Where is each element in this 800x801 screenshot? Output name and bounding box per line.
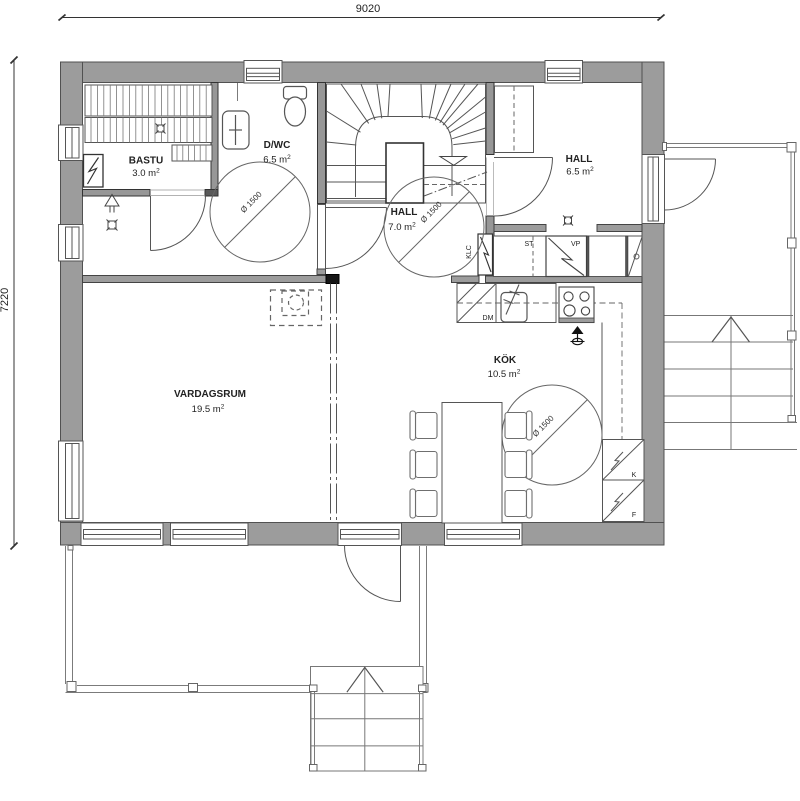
svg-text:K: K xyxy=(632,472,637,479)
svg-text:9020: 9020 xyxy=(356,3,380,15)
svg-text:HALL: HALL xyxy=(566,154,593,165)
svg-text:6.5 m2: 6.5 m2 xyxy=(263,154,291,166)
svg-text:KÖK: KÖK xyxy=(494,353,517,366)
svg-text:BASTU: BASTU xyxy=(129,156,163,167)
svg-text:VP: VP xyxy=(571,241,581,248)
svg-text:ST: ST xyxy=(525,241,535,248)
svg-text:19.5 m2: 19.5 m2 xyxy=(192,404,225,416)
svg-text:7.0 m2: 7.0 m2 xyxy=(388,222,416,234)
svg-text:3.0 m2: 3.0 m2 xyxy=(132,168,160,180)
svg-text:VARDAGSRUM: VARDAGSRUM xyxy=(174,389,246,400)
svg-text:7220: 7220 xyxy=(0,288,11,312)
svg-text:10.5 m2: 10.5 m2 xyxy=(488,369,521,381)
svg-text:6.5 m2: 6.5 m2 xyxy=(566,166,594,178)
svg-text:HALL: HALL xyxy=(391,207,418,218)
svg-text:F: F xyxy=(632,512,636,519)
svg-text:KLC: KLC xyxy=(466,245,473,259)
svg-text:DM: DM xyxy=(483,315,494,322)
svg-text:D/WC: D/WC xyxy=(264,140,291,151)
